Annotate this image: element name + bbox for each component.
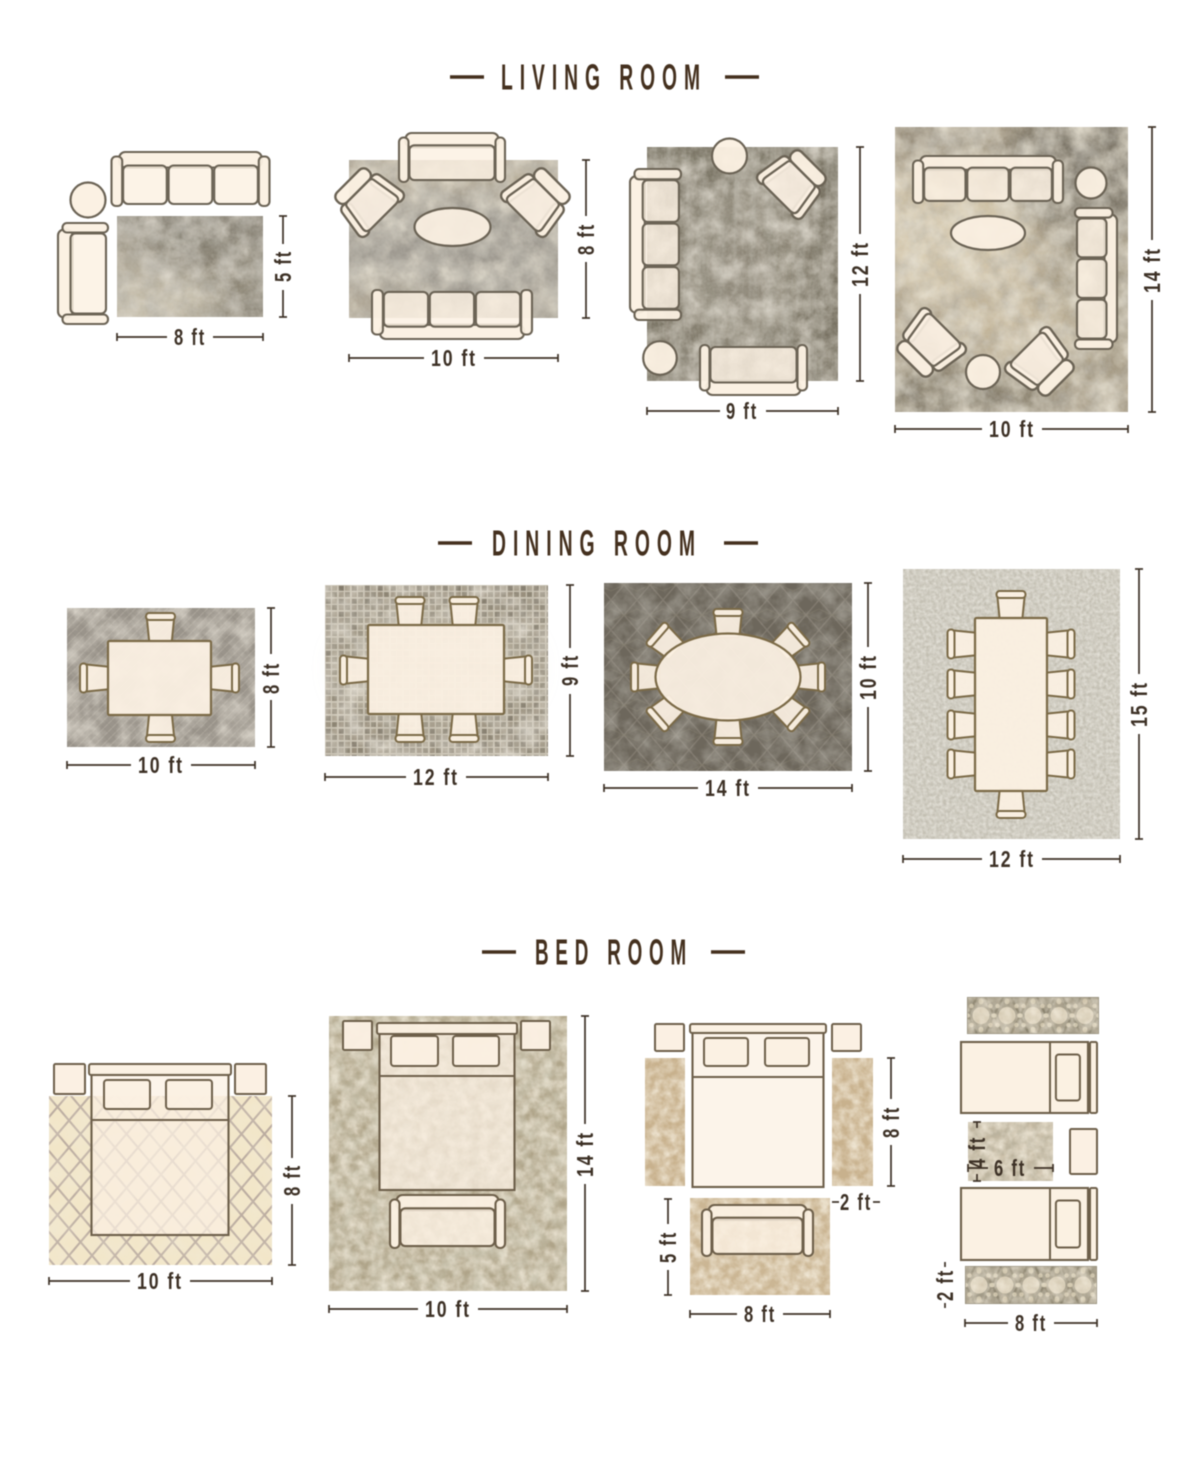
svg-text:12 ft: 12 ft <box>989 846 1035 872</box>
svg-text:9 ft: 9 ft <box>557 654 583 686</box>
svg-text:14 ft: 14 ft <box>572 1131 598 1177</box>
svg-text:2 ft: 2 ft <box>932 1269 958 1301</box>
svg-text:10 ft: 10 ft <box>855 654 881 700</box>
svg-text:14 ft: 14 ft <box>705 775 751 801</box>
svg-text:8 ft: 8 ft <box>258 662 284 694</box>
svg-text:LIVING ROOM: LIVING ROOM <box>501 57 707 98</box>
svg-text:10 ft: 10 ft <box>138 752 184 778</box>
svg-text:4 ft: 4 ft <box>964 1136 990 1168</box>
svg-text:10 ft: 10 ft <box>425 1296 471 1322</box>
svg-text:8 ft: 8 ft <box>878 1106 904 1138</box>
svg-text:6 ft: 6 ft <box>994 1155 1026 1181</box>
svg-text:12 ft: 12 ft <box>413 764 459 790</box>
svg-text:14 ft: 14 ft <box>1139 247 1165 293</box>
svg-text:2 ft: 2 ft <box>840 1189 872 1215</box>
svg-text:8 ft: 8 ft <box>279 1164 305 1196</box>
svg-text:10 ft: 10 ft <box>431 345 477 371</box>
svg-text:8 ft: 8 ft <box>573 223 599 255</box>
svg-text:8 ft: 8 ft <box>174 324 206 350</box>
svg-text:10 ft: 10 ft <box>137 1268 183 1294</box>
svg-text:12 ft: 12 ft <box>847 241 873 287</box>
svg-text:8 ft: 8 ft <box>1015 1310 1047 1336</box>
svg-text:BED ROOM: BED ROOM <box>535 932 693 973</box>
svg-text:8 ft: 8 ft <box>744 1301 776 1327</box>
svg-text:5 ft: 5 ft <box>655 1231 681 1263</box>
svg-text:15 ft: 15 ft <box>1126 681 1152 727</box>
svg-text:10 ft: 10 ft <box>989 416 1035 442</box>
svg-text:9 ft: 9 ft <box>726 398 758 424</box>
svg-text:DINING ROOM: DINING ROOM <box>492 523 702 564</box>
svg-text:5 ft: 5 ft <box>270 250 296 282</box>
